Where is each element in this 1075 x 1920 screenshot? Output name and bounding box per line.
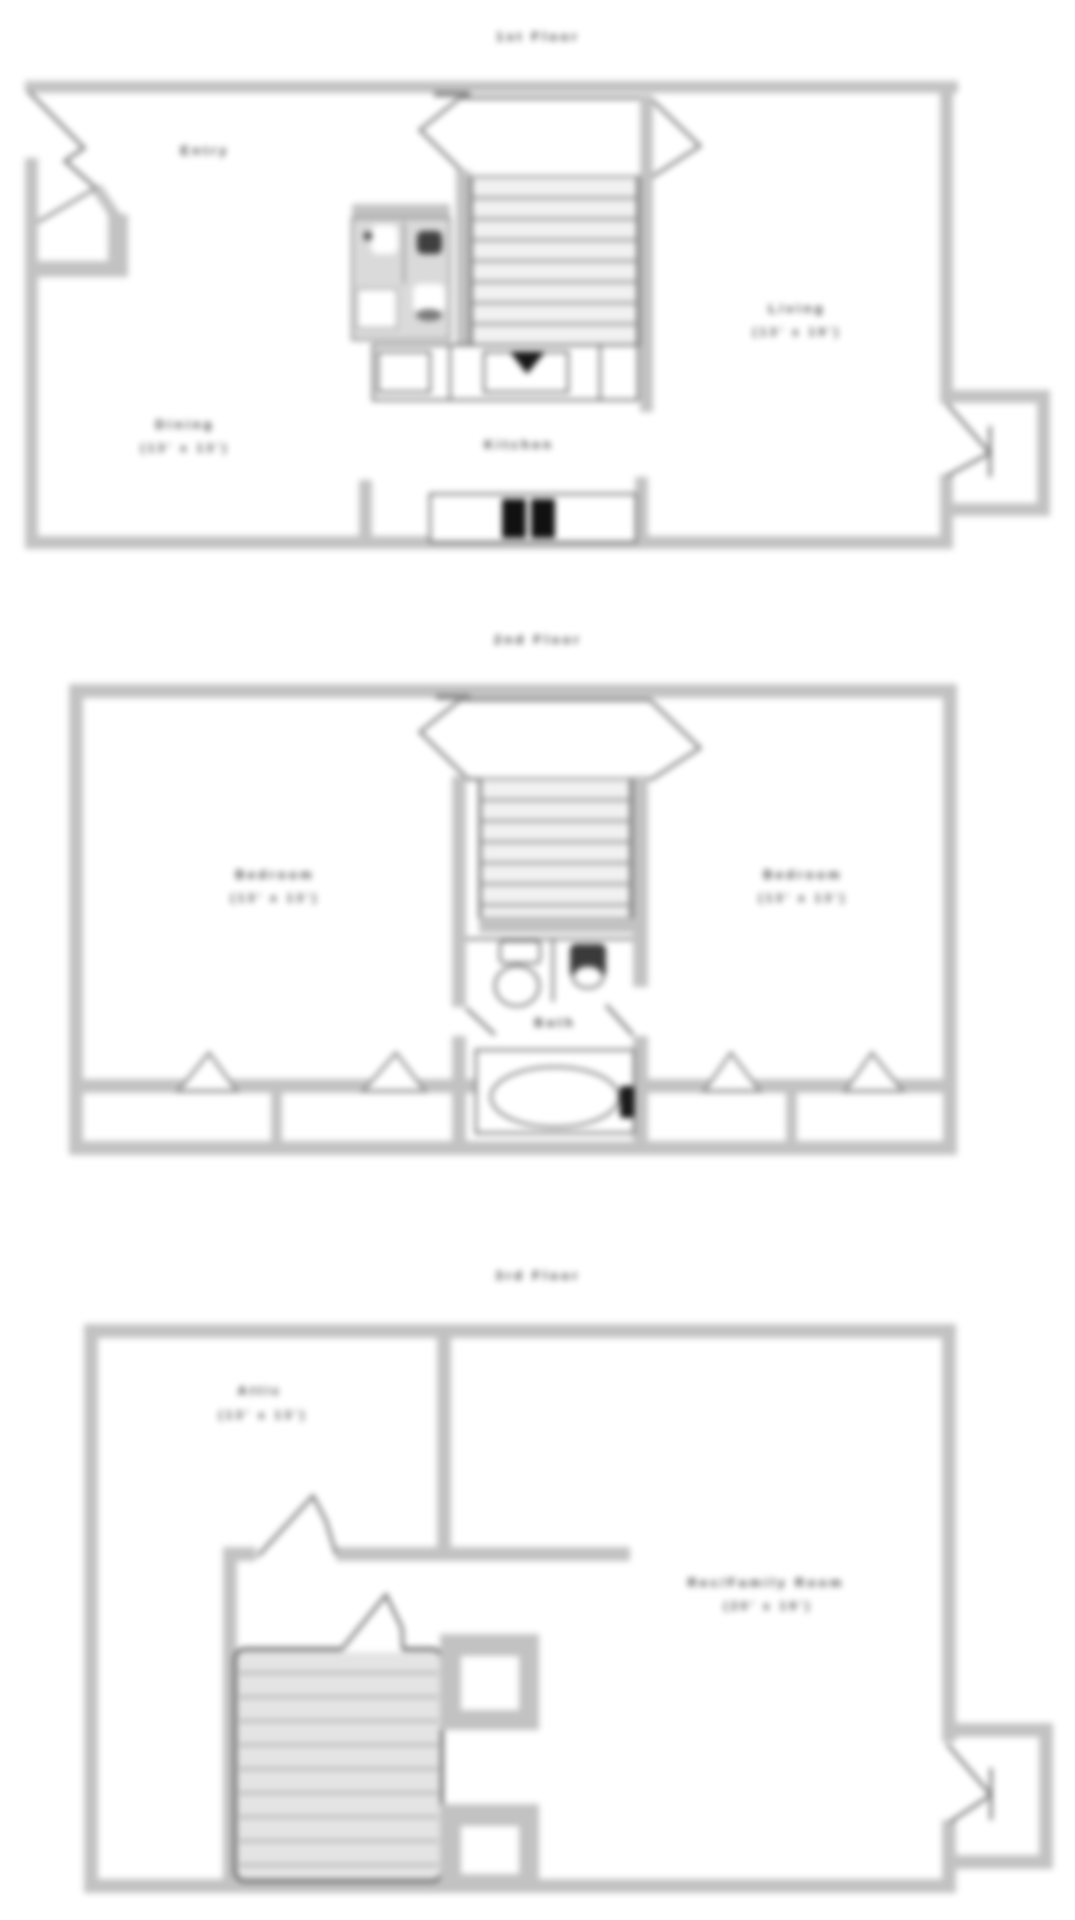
svg-text:(13' x 13'): (13' x 13') [231,891,320,905]
svg-text:Bedroom: Bedroom [235,867,314,882]
svg-text:2nd Floor: 2nd Floor [494,632,582,647]
svg-text:(13' x 19'): (13' x 19') [753,325,842,339]
svg-text:Entry: Entry [180,143,229,158]
svg-text:Rec/Family Room: Rec/Family Room [687,1575,844,1590]
svg-text:Dining: Dining [155,417,215,432]
svg-text:(20' x 19'): (20' x 19') [724,1599,813,1613]
svg-text:3rd Floor: 3rd Floor [495,1268,580,1283]
svg-text:Bedroom: Bedroom [763,867,842,882]
svg-text:1st Floor: 1st Floor [496,29,580,44]
svg-text:Bath: Bath [534,1015,576,1030]
svg-text:(13' x 13'): (13' x 13') [759,891,848,905]
svg-text:(13' x 13'): (13' x 13') [141,441,230,455]
svg-text:Living: Living [768,301,825,316]
svg-text:(13' x 13'): (13' x 13') [219,1408,308,1422]
svg-text:Kitchen: Kitchen [484,437,554,452]
svg-text:Attic: Attic [238,1383,283,1398]
